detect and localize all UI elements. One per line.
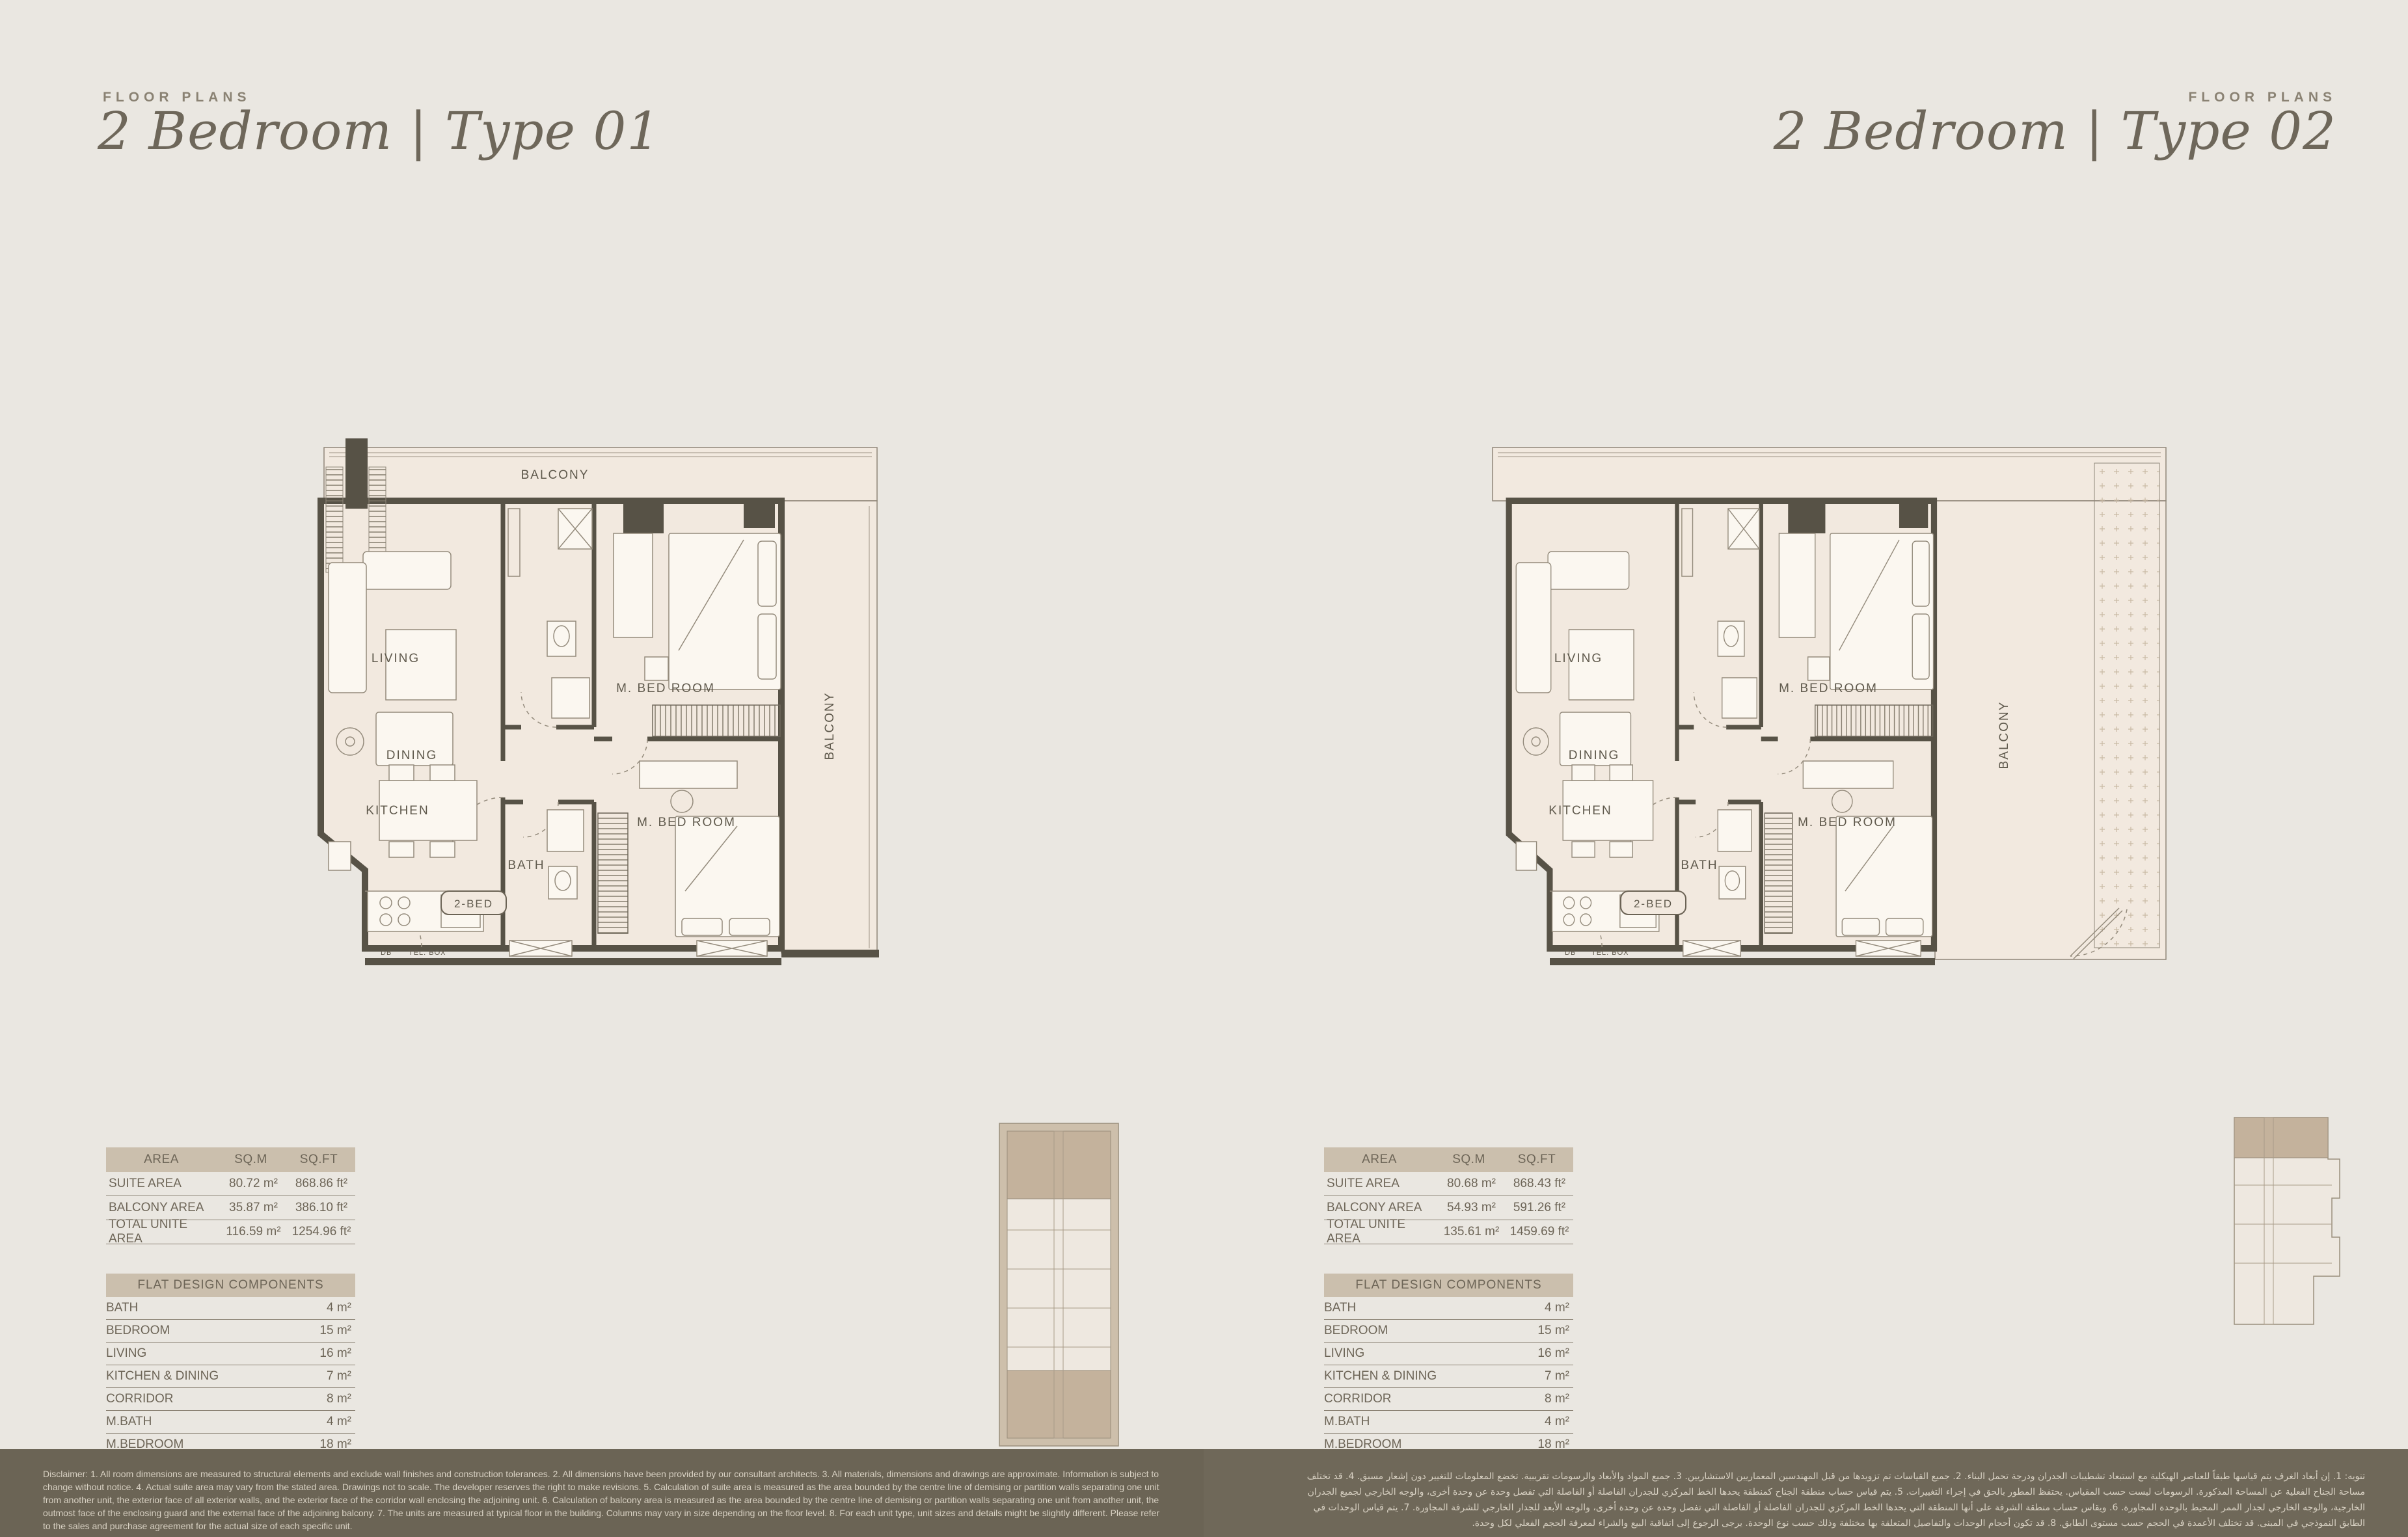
disclaimer-arabic: تنويه: 1. إن أبعاد الغرف يتم قياسها طبقا… <box>1302 1449 2408 1531</box>
components-table-type01: FLAT DESIGN COMPONENTS BATH 4 m² BEDROOM… <box>106 1274 355 1456</box>
table-row: BEDROOM 15 m² <box>106 1320 355 1343</box>
table-row: LIVING 16 m² <box>1324 1343 1573 1365</box>
planter-hatch <box>326 467 343 572</box>
page-title-type01: 2 Bedroom | Type 01 <box>98 103 660 160</box>
table-row: TOTAL UNITE AREA 135.61 m² 1459.69 ft² <box>1324 1220 1573 1244</box>
balcony-top-label: BALCONY <box>521 468 589 482</box>
dining-label: DINING <box>386 749 438 762</box>
column-block <box>744 498 775 528</box>
col-header-area: AREA <box>1324 1153 1435 1167</box>
unit-tag-label: 2-BED <box>454 898 493 910</box>
bath-label: BATH <box>1681 859 1718 872</box>
master-bedroom-2-label: M. BED ROOM <box>637 816 736 829</box>
area-table-header: AREA SQ.M SQ.FT <box>106 1147 355 1172</box>
column-block <box>345 438 368 509</box>
area-table-type01: AREA SQ.M SQ.FT SUITE AREA 80.72 m² 868.… <box>106 1147 355 1244</box>
balcony-right: BALCONY <box>1935 463 2166 959</box>
living-label: LIVING <box>1554 652 1603 665</box>
table-row: TOTAL UNITE AREA 116.59 m² 1254.96 ft² <box>106 1220 355 1244</box>
col-header-sqm: SQ.M <box>217 1153 285 1167</box>
bottom-wall-strip <box>1550 958 1935 965</box>
wardrobe <box>1815 705 1933 736</box>
footer-left: Disclaimer: 1. All room dimensions are m… <box>0 1449 1204 1537</box>
balcony-right: BALCONY <box>781 501 879 957</box>
col-header-sqft: SQ.FT <box>285 1153 353 1167</box>
key-plan-type01 <box>998 1122 1120 1447</box>
table-row: LIVING 16 m² <box>106 1343 355 1365</box>
balcony-top <box>1493 448 2166 501</box>
table-row: SUITE AREA 80.68 m² 868.43 ft² <box>1324 1172 1573 1196</box>
components-table-title: FLAT DESIGN COMPONENTS <box>106 1274 355 1297</box>
col-header-sqm: SQ.M <box>1435 1153 1503 1167</box>
column-block <box>1788 500 1825 533</box>
unit-interior <box>1509 498 1934 956</box>
components-table-type02: FLAT DESIGN COMPONENTS BATH 4 m² BEDROOM… <box>1324 1274 1573 1456</box>
highlighted-unit-top <box>1007 1131 1111 1199</box>
dining-label: DINING <box>1569 749 1620 762</box>
page-title-type02: 2 Bedroom | Type 02 <box>1774 103 2336 160</box>
table-row: CORRIDOR 8 m² <box>1324 1388 1573 1411</box>
highlighted-unit-top <box>2234 1117 2328 1158</box>
unit-tag: 2-BED <box>1621 891 1686 915</box>
balcony-dotted-deck <box>2094 463 2159 948</box>
living-label: LIVING <box>372 652 420 665</box>
table-row: KITCHEN & DINING 7 m² <box>1324 1365 1573 1388</box>
components-table-title: FLAT DESIGN COMPONENTS <box>1324 1274 1573 1297</box>
balcony-side-label: BALCONY <box>1997 701 2011 769</box>
table-row: M.BATH 4 m² <box>1324 1411 1573 1434</box>
footer-right: تنويه: 1. إن أبعاد الغرف يتم قياسها طبقا… <box>1204 1449 2408 1537</box>
unit-tag: 2-BED <box>441 891 506 915</box>
master-bedroom-1-label: M. BED ROOM <box>616 682 715 695</box>
table-row: M.BATH 4 m² <box>106 1411 355 1434</box>
floor-plan-brochure-page: FLOOR PLANS 2 Bedroom | Type 01 BALCONY … <box>0 0 2408 1537</box>
table-row: BATH 4 m² <box>106 1297 355 1320</box>
unit-tag-label: 2-BED <box>1634 898 1673 910</box>
kitchen-label: KITCHEN <box>1549 804 1612 818</box>
table-row: SUITE AREA 80.72 m² 868.86 ft² <box>106 1172 355 1196</box>
table-row: BALCONY AREA 35.87 m² 386.10 ft² <box>106 1196 355 1220</box>
floor-plan-type01: BALCONY BALCONY <box>288 436 919 982</box>
unit-interior <box>321 438 781 956</box>
bath-label: BATH <box>507 859 545 872</box>
wardrobe <box>1765 813 1792 933</box>
column-block <box>623 500 664 533</box>
table-row: BATH 4 m² <box>1324 1297 1573 1320</box>
highlighted-unit-bottom <box>1007 1370 1111 1438</box>
master-bedroom-2-label: M. BED ROOM <box>1798 816 1897 829</box>
balcony-side-label: BALCONY <box>823 692 837 760</box>
wardrobe <box>653 705 780 736</box>
area-table-type02: AREA SQ.M SQ.FT SUITE AREA 80.68 m² 868.… <box>1324 1147 1573 1244</box>
column-block <box>1899 498 1928 528</box>
kitchen-label: KITCHEN <box>366 804 429 818</box>
floor-plan-type02: BALCONY <box>1480 436 2189 982</box>
balcony-top: BALCONY <box>324 448 877 501</box>
bottom-wall-strip <box>365 958 781 965</box>
master-bedroom-1-label: M. BED ROOM <box>1779 682 1878 695</box>
footer-disclaimer-bar: Disclaimer: 1. All room dimensions are m… <box>0 1449 2408 1537</box>
table-row: KITCHEN & DINING 7 m² <box>106 1365 355 1388</box>
col-header-area: AREA <box>106 1153 217 1167</box>
wardrobe <box>598 813 628 933</box>
table-row: CORRIDOR 8 m² <box>106 1388 355 1411</box>
area-table-header: AREA SQ.M SQ.FT <box>1324 1147 1573 1172</box>
disclaimer-english: Disclaimer: 1. All room dimensions are m… <box>0 1449 1166 1532</box>
db-label: DB <box>381 949 392 957</box>
tel-box-label: TEL. BOX <box>409 949 446 957</box>
key-plan-type02 <box>2230 1114 2352 1328</box>
col-header-sqft: SQ.FT <box>1503 1153 1571 1167</box>
table-row: BALCONY AREA 54.93 m² 591.26 ft² <box>1324 1196 1573 1220</box>
table-row: BEDROOM 15 m² <box>1324 1320 1573 1343</box>
db-label: DB <box>1565 949 1576 957</box>
tel-box-label: TEL. BOX <box>1591 949 1629 957</box>
